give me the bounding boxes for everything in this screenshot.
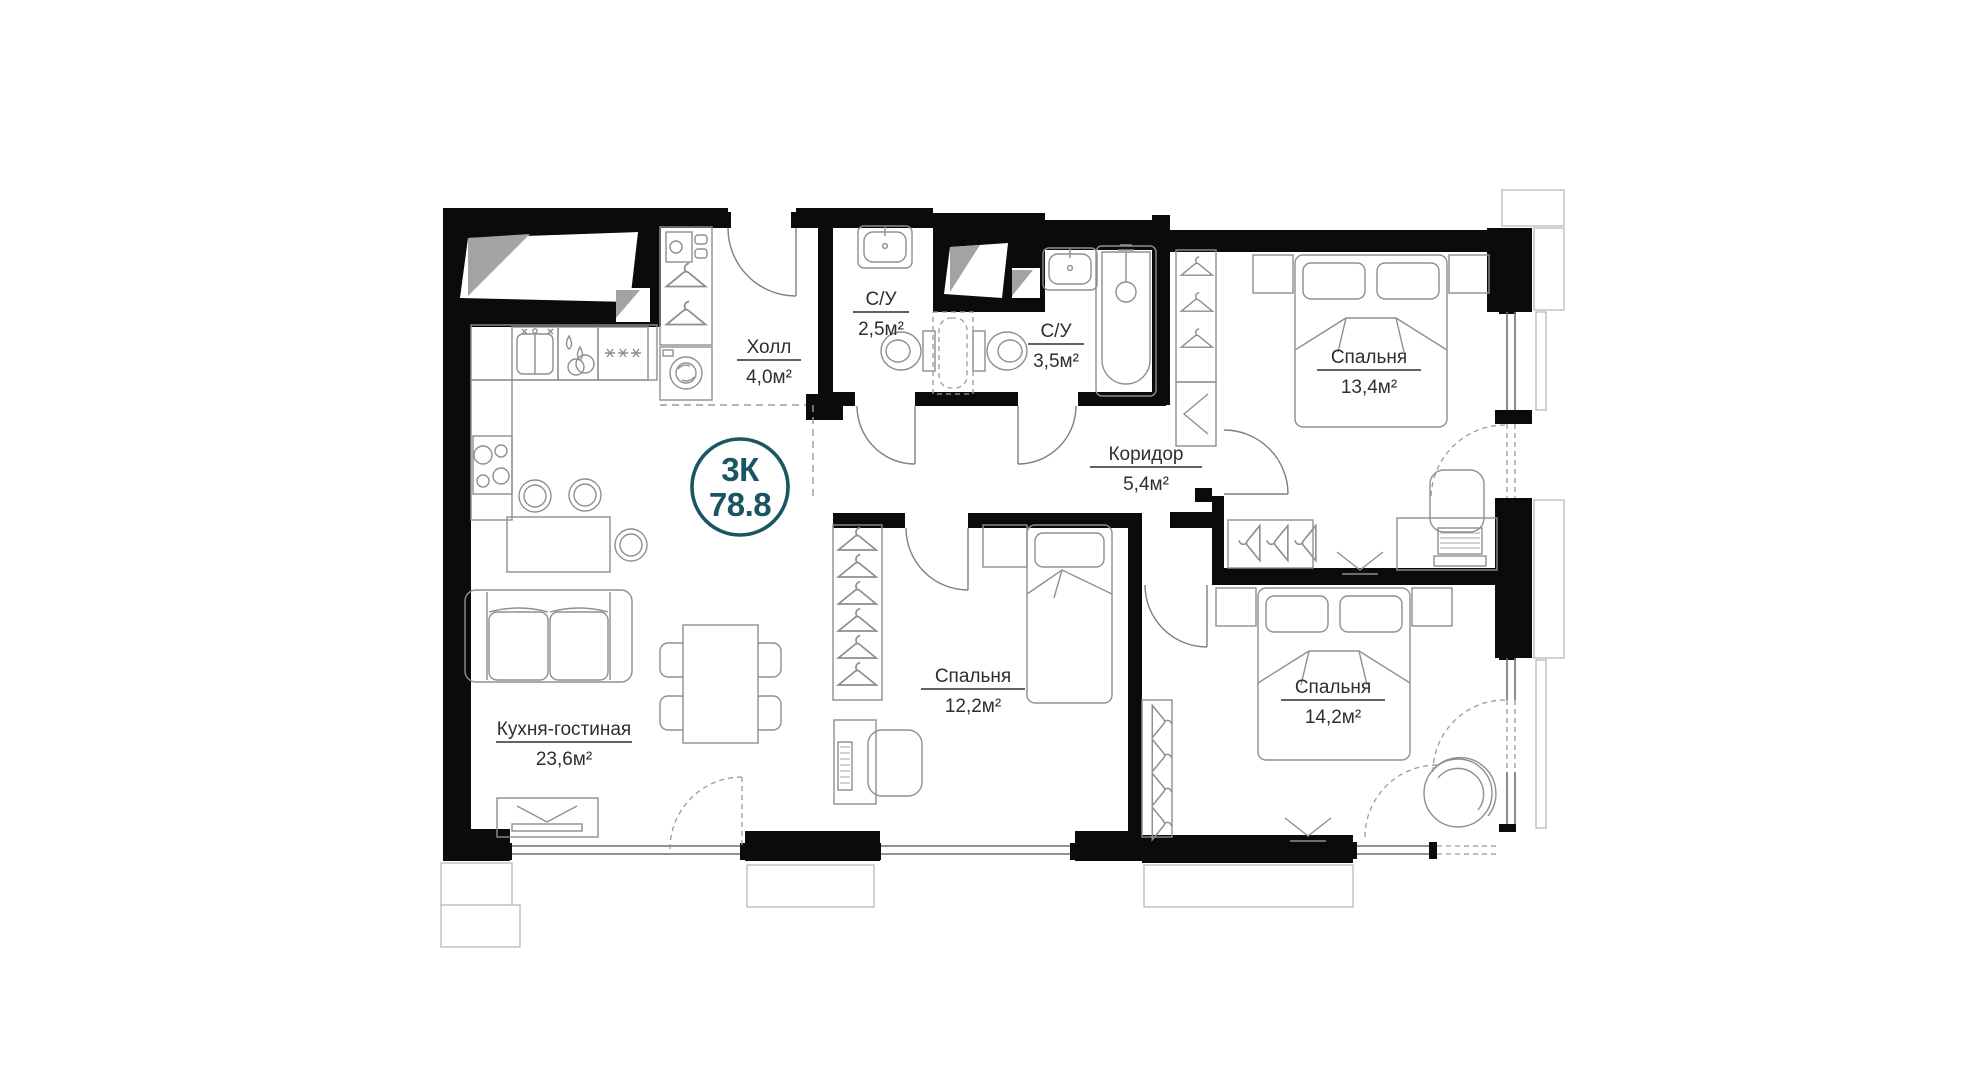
- wardrobe-row: [1228, 520, 1316, 568]
- wardrobe: [1176, 250, 1216, 446]
- kitchen-sink-icon: [512, 327, 558, 380]
- hanger-icon: [838, 635, 876, 657]
- room-name: Спальня: [1295, 677, 1371, 698]
- bathtub-icon: [1096, 245, 1156, 396]
- hanger-icon: [838, 662, 876, 684]
- room-label-bedroom-14: Спальня 14,2м²: [1281, 677, 1385, 728]
- hanger-icon: [1152, 807, 1171, 840]
- room-area: 12,2м²: [945, 696, 1001, 717]
- room-name: Коридор: [1108, 444, 1183, 465]
- duct-between-bathrooms: [933, 312, 973, 394]
- room-area: 5,4м²: [1123, 474, 1169, 495]
- bathroom-sink-icon: [858, 226, 912, 268]
- washing-machine-icon: [660, 347, 712, 400]
- room-label-bedroom-13: Спальня 13,4м²: [1317, 347, 1421, 398]
- kitchen-counter-side: [471, 380, 512, 520]
- double-bed-icon: [1295, 255, 1447, 427]
- hanger-icon: [1239, 526, 1260, 561]
- bathroom-sink-icon: [1043, 248, 1097, 290]
- hanger-icon: [838, 554, 876, 576]
- floor-plan-page: Кухня-гостиная 23,6м² Холл 4,0м² С/У 2,5…: [0, 0, 1980, 1080]
- single-bed-icon: [1027, 525, 1112, 703]
- room-name: С/У: [1040, 321, 1072, 342]
- nightstand-icon: [1449, 255, 1489, 293]
- doors: [670, 228, 1505, 849]
- bedroom-12-furniture: [833, 525, 1112, 804]
- hanger-icon: [1181, 257, 1212, 276]
- bedroom-13-furniture: [1176, 250, 1497, 574]
- hanger-icon: [1152, 773, 1171, 806]
- apartment-badge: 3К 78.8: [692, 439, 788, 535]
- hanger-icon: [667, 263, 706, 286]
- room-area: 14,2м²: [1305, 707, 1361, 728]
- stove-icon: [473, 436, 512, 494]
- tv-stand-icon: [497, 798, 598, 837]
- room-area: 2,5м²: [858, 319, 904, 340]
- nightstand-icon: [1216, 588, 1256, 626]
- walls: [443, 208, 1532, 863]
- room-area: 13,4м²: [1341, 377, 1397, 398]
- floor-plan: Кухня-гостиная 23,6м² Холл 4,0м² С/У 2,5…: [0, 0, 1980, 1080]
- toilet-icon: [973, 331, 1027, 371]
- hanger-icon: [1181, 329, 1212, 348]
- armchair-icon: [1424, 758, 1496, 827]
- kitchen-living-furniture: [465, 325, 781, 837]
- room-label-kitchen-living: Кухня-гостиная 23,6м²: [496, 719, 632, 770]
- hanger-icon: [667, 301, 706, 324]
- double-bed-icon: [1258, 588, 1410, 760]
- badge-type: 3К: [721, 451, 760, 488]
- wardrobe: [833, 525, 882, 700]
- fridge-stars-icon: [598, 327, 648, 380]
- dining-table-icon: [660, 625, 781, 743]
- hall-closet: [660, 227, 712, 400]
- room-area: 4,0м²: [746, 367, 792, 388]
- hanger-icon: [838, 581, 876, 603]
- room-label-bedroom-12: Спальня 12,2м²: [921, 666, 1025, 717]
- room-label-bathroom-small: С/У 2,5м²: [853, 289, 909, 340]
- room-name: Спальня: [1331, 347, 1407, 368]
- room-name: Холл: [747, 337, 792, 358]
- entry-door-swing-icon: [728, 228, 796, 296]
- hanger-icon: [838, 608, 876, 630]
- room-name: Кухня-гостиная: [497, 719, 631, 740]
- room-label-corridor: Коридор 5,4м²: [1090, 444, 1202, 495]
- room-label-hall: Холл 4,0м²: [737, 337, 801, 388]
- room-area: 23,6м²: [536, 749, 592, 770]
- hanger-icon: [1152, 739, 1171, 772]
- hanger-icon: [1152, 705, 1171, 738]
- room-label-bathroom-big: С/У 3,5м²: [1028, 321, 1084, 372]
- nightstand-icon: [983, 525, 1027, 567]
- hanger-icon: [1267, 526, 1288, 561]
- bar-stool-icon: [519, 479, 647, 561]
- room-area: 3,5м²: [1033, 351, 1079, 372]
- sofa-icon: [465, 590, 632, 682]
- badge-area: 78.8: [709, 486, 771, 523]
- kitchen-counter: [471, 325, 657, 380]
- dish-drying-icon: [558, 327, 598, 380]
- desk-icon: [834, 720, 876, 804]
- hanger-icon: [838, 527, 876, 549]
- bar-table: [507, 517, 610, 572]
- nightstand-icon: [1253, 255, 1293, 293]
- wardrobe-strip: [1142, 700, 1172, 840]
- hanger-icon: [1181, 293, 1212, 312]
- office-chair-icon: [1430, 470, 1484, 532]
- room-name: С/У: [865, 289, 897, 310]
- room-name: Спальня: [935, 666, 1011, 687]
- nightstand-icon: [1412, 588, 1452, 626]
